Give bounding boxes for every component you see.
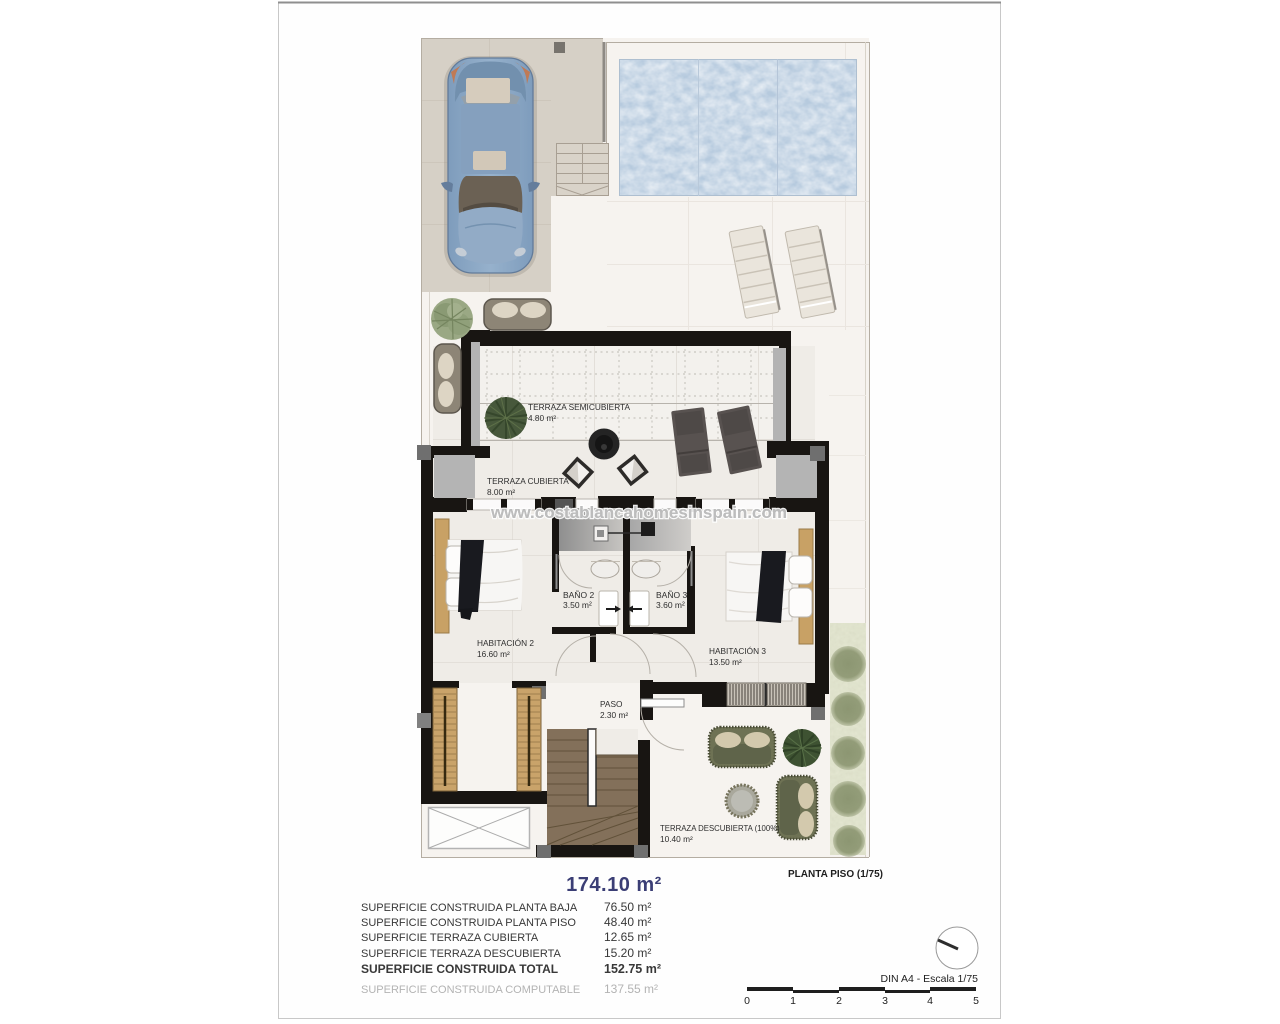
svg-text:3.50 m²: 3.50 m² (563, 600, 592, 610)
svg-text:3.60 m²: 3.60 m² (656, 600, 685, 610)
svg-text:4: 4 (927, 995, 933, 1007)
svg-text:TERRAZA DESCUBIERTA (100%): TERRAZA DESCUBIERTA (100%) (660, 824, 780, 833)
svg-text:SUPERFICIE CONSTRUIDA COMPUTAB: SUPERFICIE CONSTRUIDA COMPUTABLE (361, 984, 580, 996)
svg-text:3: 3 (882, 995, 888, 1007)
svg-text:137.55 m²: 137.55 m² (604, 982, 658, 996)
svg-text:12.65 m²: 12.65 m² (604, 930, 651, 944)
svg-text:2.30 m²: 2.30 m² (600, 710, 628, 720)
svg-text:TERRAZA SEMICUBIERTA: TERRAZA SEMICUBIERTA (528, 402, 631, 412)
svg-text:DIN A4 - Escala 1/75: DIN A4 - Escala 1/75 (881, 973, 979, 985)
svg-text:HABITACIÓN 2: HABITACIÓN 2 (477, 638, 534, 648)
svg-text:48.40 m²: 48.40 m² (604, 915, 651, 929)
svg-text:SUPERFICIE TERRAZA DESCUBIERTA: SUPERFICIE TERRAZA DESCUBIERTA (361, 948, 562, 960)
svg-text:4.80 m²: 4.80 m² (528, 413, 556, 423)
svg-text:SUPERFICIE CONSTRUIDA PLANTA P: SUPERFICIE CONSTRUIDA PLANTA PISO (361, 917, 576, 929)
svg-text:15.20 m²: 15.20 m² (604, 946, 651, 960)
svg-text:13.50 m²: 13.50 m² (709, 657, 742, 667)
svg-text:16.60 m²: 16.60 m² (477, 649, 510, 659)
svg-text:SUPERFICIE CONSTRUIDA PLANTA B: SUPERFICIE CONSTRUIDA PLANTA BAJA (361, 902, 578, 914)
svg-text:8.00 m²: 8.00 m² (487, 487, 515, 497)
svg-text:BAÑO 2: BAÑO 2 (563, 590, 594, 600)
svg-text:2: 2 (836, 995, 842, 1007)
svg-text:5: 5 (973, 995, 979, 1007)
svg-text:76.50 m²: 76.50 m² (604, 900, 651, 914)
svg-text:SUPERFICIE CONSTRUIDA TOTAL: SUPERFICIE CONSTRUIDA TOTAL (361, 962, 558, 976)
svg-text:0: 0 (744, 995, 750, 1007)
svg-text:www.costablancahomesinspain.co: www.costablancahomesinspain.com (490, 503, 787, 522)
svg-text:152.75 m²: 152.75 m² (604, 962, 661, 976)
svg-text:1: 1 (790, 995, 796, 1007)
svg-text:TERRAZA CUBIERTA: TERRAZA CUBIERTA (487, 476, 569, 486)
svg-text:174.10 m²: 174.10 m² (566, 874, 662, 896)
svg-text:SUPERFICIE TERRAZA CUBIERTA: SUPERFICIE TERRAZA CUBIERTA (361, 932, 539, 944)
svg-text:PASO: PASO (600, 699, 623, 709)
svg-text:PLANTA PISO (1/75): PLANTA PISO (1/75) (788, 869, 883, 880)
svg-text:BAÑO 3: BAÑO 3 (656, 590, 687, 600)
svg-text:HABITACIÓN 3: HABITACIÓN 3 (709, 646, 766, 656)
svg-text:10.40 m²: 10.40 m² (660, 834, 693, 844)
